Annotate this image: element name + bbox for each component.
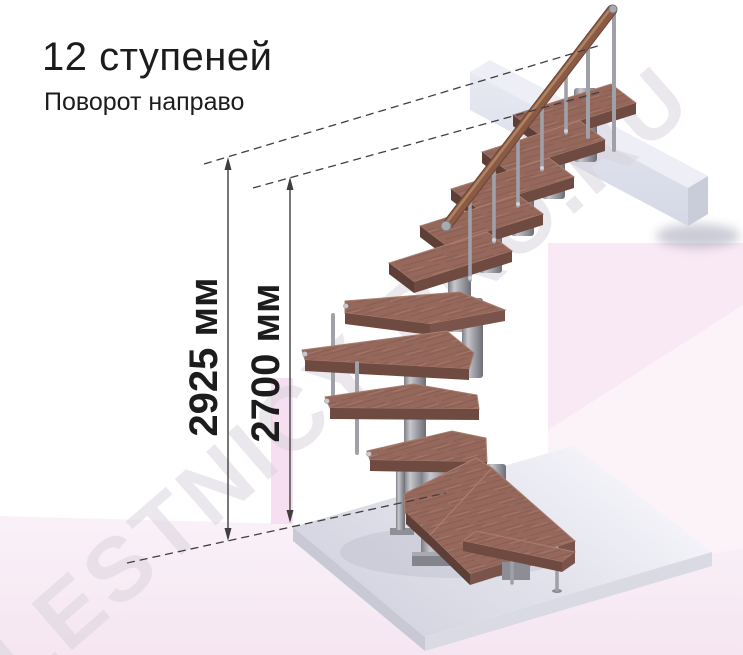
baluster-foot: [516, 202, 520, 206]
baluster-foot: [468, 276, 472, 280]
baluster-foot: [492, 238, 496, 242]
handrail-top-cap: [609, 5, 617, 13]
page-title: 12 ступеней: [42, 36, 272, 78]
turn-direction-label: Поворот направо: [44, 88, 244, 117]
baluster-foot: [564, 129, 568, 133]
beam-shadow: [656, 224, 740, 248]
overall-height-label: 2925 мм: [181, 247, 227, 467]
floor-height-label: 2700 мм: [243, 253, 289, 473]
step-bolt: [325, 399, 330, 404]
staircase-diagram: LESTNICY-PRO.RU: [0, 0, 743, 655]
step-bolt: [303, 352, 308, 357]
step-bolt: [344, 304, 349, 309]
step-bolt: [367, 452, 372, 457]
handrail-end-cap: [441, 221, 451, 231]
step-bracket: [502, 562, 530, 580]
baluster-foot: [540, 166, 544, 170]
